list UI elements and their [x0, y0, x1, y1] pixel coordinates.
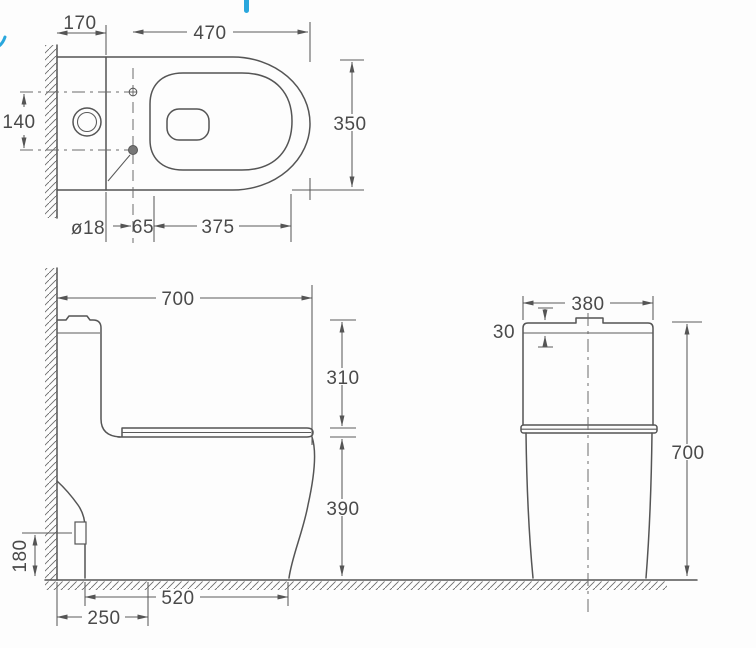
dim-170-label: 170 [63, 13, 96, 34]
dim-380-label: 380 [571, 294, 604, 315]
bowl-front-profile [289, 437, 315, 578]
dim-30-label: 30 [493, 322, 515, 343]
top-view: 170 470 140 350 ø18 [2, 13, 368, 243]
dim-470-label: 470 [193, 23, 226, 44]
base-left-edge [526, 433, 533, 578]
flush-valve-inner [78, 113, 97, 132]
dim-overall-depth: 700 [57, 285, 312, 445]
dim-520-label: 520 [161, 588, 194, 609]
technical-drawing-page: 170 470 140 350 ø18 [0, 0, 756, 648]
logo-fragment-left [0, 37, 5, 46]
dim-outlet-height: 180 [10, 533, 72, 576]
water-surface [167, 109, 209, 140]
rear-view: 380 30 700 [493, 294, 708, 613]
dim-390-label: 390 [326, 499, 359, 520]
dim-bowl-width: 350 [292, 60, 368, 190]
side-view: 700 310 390 180 [10, 268, 697, 629]
wall-hatching [45, 45, 57, 218]
tank-profile [57, 316, 120, 437]
dim-700-height-label: 700 [671, 443, 704, 464]
logo-fragment-top [244, 0, 249, 13]
dim-bottom-row: ø18 65 375 [71, 192, 291, 242]
dim-250-label: 250 [87, 608, 120, 629]
dim-hole-spacing: 140 [2, 94, 35, 148]
dim-180-label: 180 [10, 539, 31, 572]
dim-375-label: 375 [201, 217, 234, 238]
fixing-hole-hatched [129, 146, 138, 155]
outlet-marker [75, 522, 86, 544]
hole-leader-line [108, 155, 130, 181]
dim-350-label: 350 [333, 114, 366, 135]
seat-opening [150, 73, 292, 170]
dim-tank-top-to-seat: 310 [324, 320, 361, 437]
dim-overall-height: 700 [667, 322, 708, 576]
dim-700-depth-label: 700 [161, 289, 194, 310]
dim-140-label: 140 [2, 112, 35, 133]
base-right-edge [646, 433, 652, 578]
floor-hatching [45, 582, 667, 591]
dim-hole-diameter-label: ø18 [71, 218, 105, 239]
dim-310-label: 310 [326, 368, 359, 389]
dim-65-label: 65 [132, 217, 154, 238]
dim-seat-height: 390 [324, 439, 361, 576]
toilet-dimension-drawing: 170 470 140 350 ø18 [0, 0, 756, 648]
dim-wall-to-tank-front: 170 [57, 13, 106, 55]
